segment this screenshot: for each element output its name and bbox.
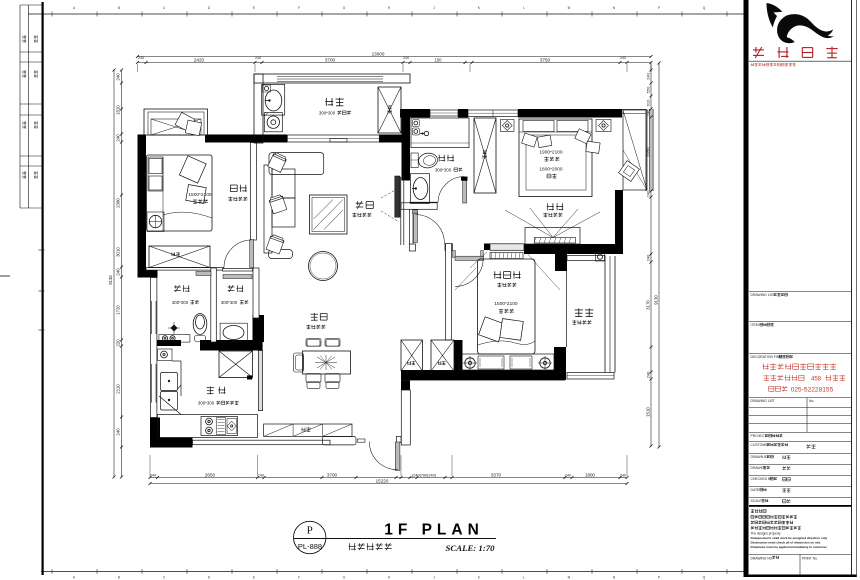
svg-text:240: 240 [116, 268, 121, 276]
svg-text:1900*2100: 1900*2100 [539, 150, 563, 156]
svg-text:458: 458 [811, 377, 822, 383]
svg-text:B: B [118, 576, 120, 580]
svg-text:No.: No. [809, 399, 814, 403]
svg-text:Drawtaste must be applied imme: Drawtaste must be applied immediately in… [751, 545, 828, 549]
svg-text:300*300: 300*300 [435, 168, 452, 173]
svg-text:240: 240 [645, 254, 650, 261]
svg-text:240: 240 [620, 56, 626, 60]
svg-text:1800*2000: 1800*2000 [539, 167, 563, 173]
svg-text:1720: 1720 [116, 305, 121, 315]
svg-text:Destination need check all of: Destination need check all of dimension … [751, 541, 821, 545]
svg-text:9130: 9130 [108, 275, 113, 285]
svg-text:240: 240 [138, 56, 144, 60]
svg-text:2110: 2110 [116, 384, 121, 394]
svg-text:240: 240 [116, 134, 121, 142]
svg-text:E: E [253, 6, 255, 10]
svg-text:240: 240 [403, 56, 409, 60]
svg-text:E: E [253, 576, 255, 580]
svg-text:M: M [568, 6, 571, 10]
svg-text:550: 550 [645, 86, 650, 93]
svg-text:300*300: 300*300 [198, 401, 215, 406]
svg-text:3700: 3700 [325, 58, 336, 63]
svg-text:240: 240 [255, 56, 261, 60]
svg-text:DRAWING NO.: DRAWING NO. [751, 557, 774, 561]
svg-text:2650: 2650 [205, 473, 216, 478]
svg-text:220: 220 [116, 339, 121, 347]
svg-text:ITEM: ITEM [751, 323, 759, 327]
svg-text:PROJECT: PROJECT [751, 434, 767, 438]
svg-text:PL-888: PL-888 [298, 542, 322, 551]
svg-text:B: B [118, 6, 120, 10]
svg-text:240: 240 [150, 474, 156, 478]
svg-text:The designs property: The designs property [751, 532, 781, 536]
svg-text:F: F [298, 576, 300, 580]
svg-text:1520: 1520 [116, 105, 121, 115]
svg-text:1F PLAN: 1F PLAN [384, 522, 484, 539]
svg-text:F: F [298, 6, 300, 10]
svg-text:240: 240 [565, 474, 571, 478]
svg-text:300*300: 300*300 [221, 300, 238, 305]
svg-text:P: P [658, 576, 660, 580]
svg-text:L: L [523, 576, 525, 580]
svg-text:M: M [568, 576, 571, 580]
svg-text:3170: 3170 [645, 300, 650, 310]
svg-text:240: 240 [116, 428, 121, 436]
svg-text:DRAWING LIST: DRAWING LIST [751, 399, 775, 403]
svg-text:SCALE: SCALE [751, 499, 763, 503]
svg-text:1510: 1510 [645, 407, 650, 417]
svg-text:DATE: DATE [751, 488, 761, 492]
svg-text:P: P [307, 525, 313, 537]
svg-text:CHECKED BY: CHECKED BY [751, 477, 774, 481]
svg-text:DRAWN BY: DRAWN BY [751, 455, 770, 459]
svg-text:L: L [523, 6, 525, 10]
svg-text:(240)760(240): (240)760(240) [412, 474, 437, 478]
svg-text:9130: 9130 [653, 295, 658, 305]
svg-text:3750: 3750 [540, 58, 551, 63]
svg-text:025-52228155: 025-52228155 [791, 386, 834, 393]
svg-text:3370: 3370 [491, 473, 502, 478]
svg-text:2380: 2380 [116, 198, 121, 208]
svg-text:PRINT No.: PRINT No. [802, 557, 818, 561]
svg-text:150: 150 [435, 58, 443, 63]
svg-text:SCALE: 1:70: SCALE: 1:70 [445, 543, 495, 553]
svg-text:240: 240 [645, 190, 650, 197]
svg-text:300*300: 300*300 [319, 111, 336, 116]
svg-text:2420: 2420 [194, 58, 205, 63]
svg-text:DECORATION FIRM: DECORATION FIRM [751, 355, 783, 359]
svg-text:1500*2100: 1500*2100 [494, 301, 518, 307]
svg-text:140: 140 [258, 474, 264, 478]
svg-text:3010: 3010 [116, 247, 121, 257]
svg-text:300*300: 300*300 [172, 300, 189, 305]
svg-text:13000: 13000 [372, 52, 385, 57]
svg-text:1500*2100: 1500*2100 [188, 192, 212, 198]
svg-text:240: 240 [645, 371, 650, 378]
svg-text:1800: 1800 [585, 473, 595, 478]
svg-text:P: P [658, 6, 660, 10]
svg-text:240: 240 [116, 73, 121, 81]
svg-text:3700: 3700 [327, 473, 338, 478]
svg-text:Drawproducts shall work be ass: Drawproducts shall work be assigned dire… [751, 536, 828, 540]
svg-text:240: 240 [620, 474, 626, 478]
svg-text:DRAWING LIST: DRAWING LIST [751, 293, 775, 297]
svg-text:15220: 15220 [376, 479, 389, 484]
svg-text:610: 610 [645, 99, 650, 106]
svg-text:240: 240 [645, 72, 650, 79]
